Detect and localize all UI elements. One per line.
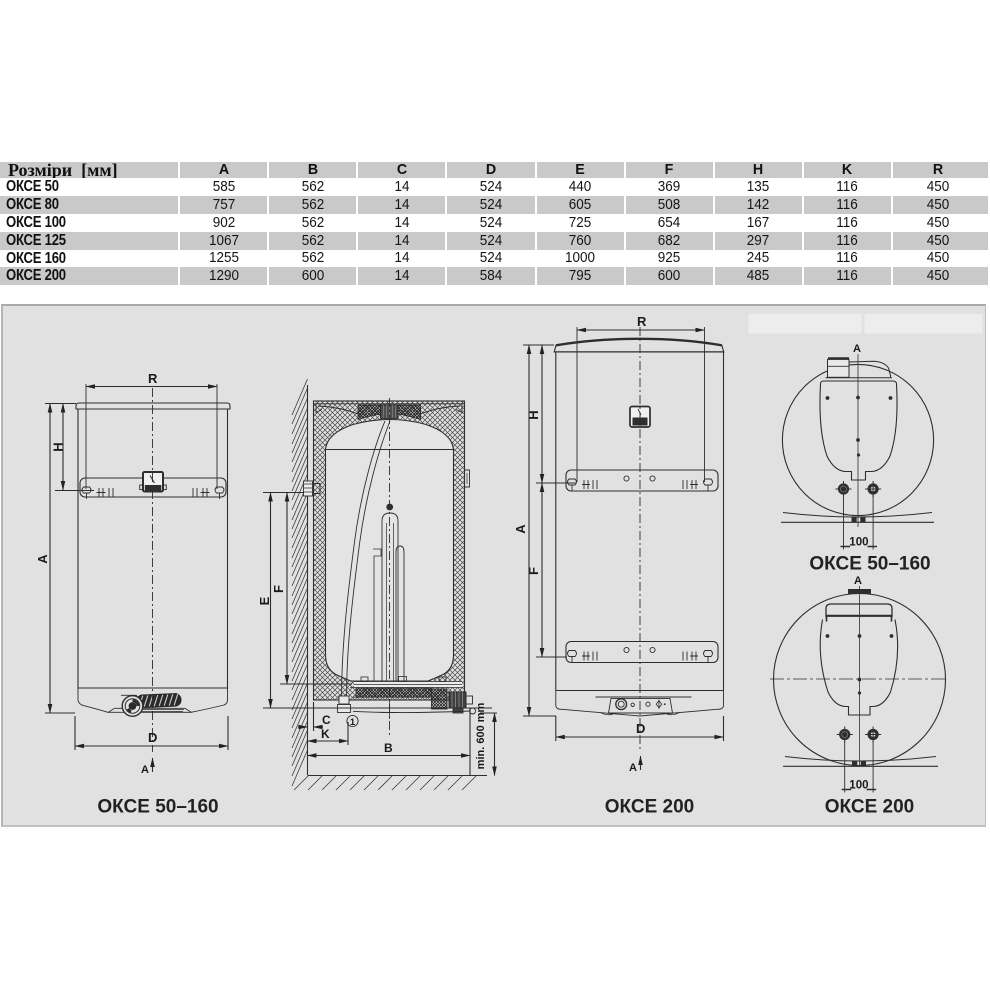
svg-text:ОКСЕ 200: ОКСЕ 200 bbox=[825, 797, 915, 818]
svg-text:D: D bbox=[636, 721, 645, 736]
svg-text:A: A bbox=[513, 524, 528, 534]
svg-text:min. 600 mm: min. 600 mm bbox=[475, 702, 487, 769]
svg-text:R: R bbox=[637, 314, 647, 329]
svg-text:A: A bbox=[854, 575, 862, 587]
svg-text:ОКСЕ 200: ОКСЕ 200 bbox=[605, 797, 695, 818]
svg-text:ОКСЕ 50–160: ОКСЕ 50–160 bbox=[97, 797, 218, 818]
svg-text:F: F bbox=[271, 585, 286, 593]
svg-text:F: F bbox=[526, 567, 541, 575]
svg-text:1: 1 bbox=[350, 717, 356, 728]
svg-text:E: E bbox=[257, 596, 272, 605]
svg-text:A: A bbox=[629, 762, 637, 774]
svg-text:H: H bbox=[526, 410, 541, 419]
svg-text:R: R bbox=[148, 371, 158, 386]
svg-text:C: C bbox=[322, 713, 331, 727]
svg-text:ОКСЕ 50–160: ОКСЕ 50–160 bbox=[809, 554, 930, 575]
svg-text:B: B bbox=[384, 741, 393, 755]
svg-text:A: A bbox=[853, 343, 861, 355]
svg-text:A: A bbox=[141, 764, 149, 776]
svg-text:H: H bbox=[51, 442, 66, 451]
svg-text:A: A bbox=[35, 554, 50, 564]
svg-text:D: D bbox=[148, 730, 157, 745]
svg-text:K: K bbox=[321, 727, 330, 741]
svg-text:100: 100 bbox=[849, 780, 868, 792]
svg-text:100: 100 bbox=[849, 537, 868, 549]
